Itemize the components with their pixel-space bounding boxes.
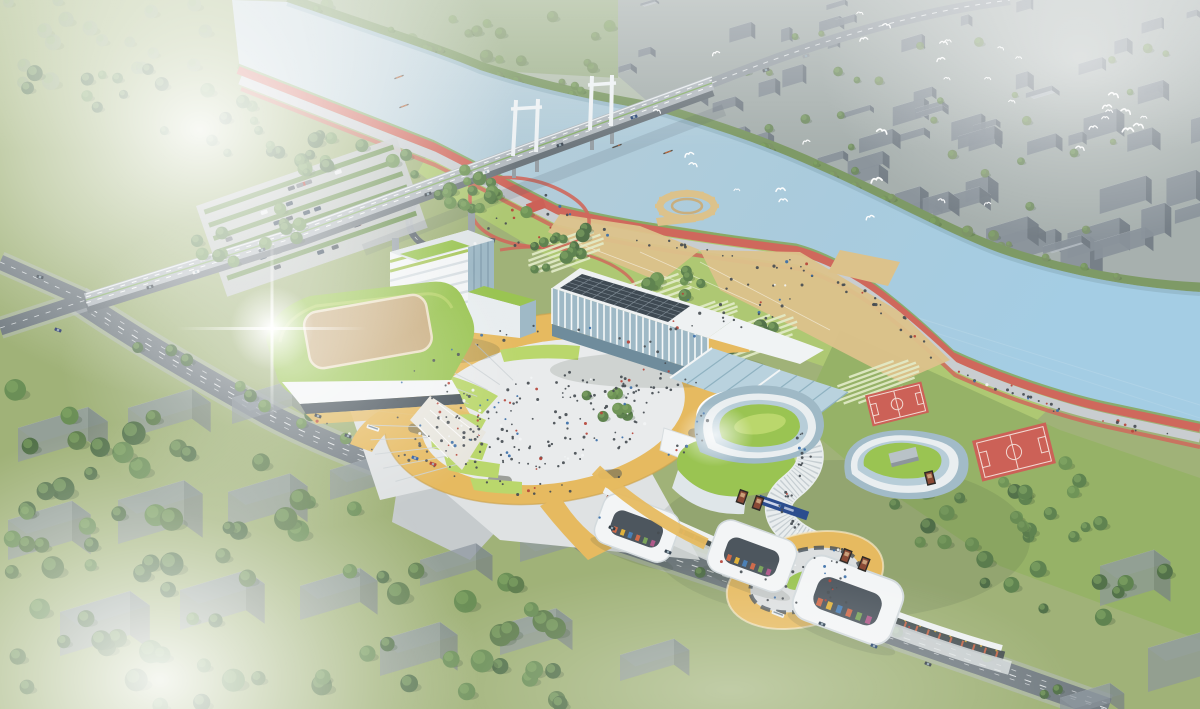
scene-canvas bbox=[0, 0, 1200, 709]
aerial-rendering bbox=[0, 0, 1200, 709]
